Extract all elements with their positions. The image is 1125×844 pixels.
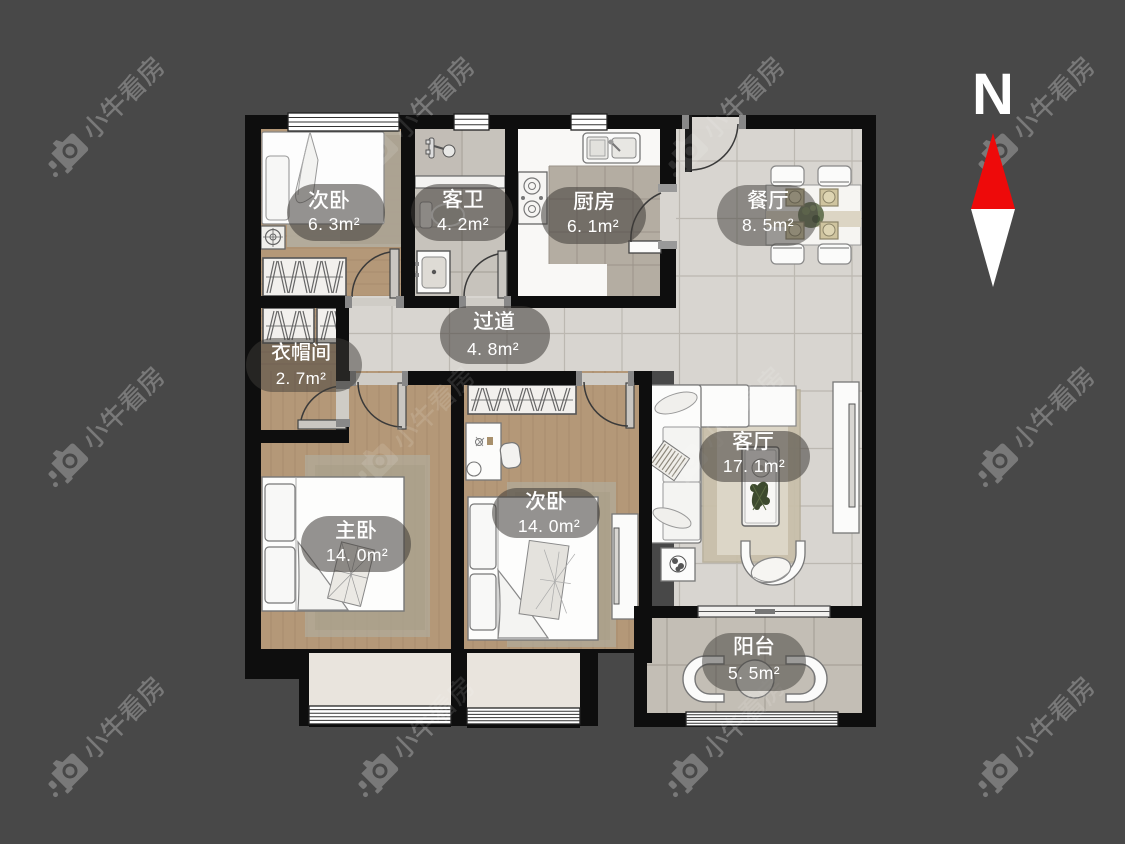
svg-text:17. 1m²: 17. 1m² <box>723 456 785 476</box>
svg-text:6. 1m²: 6. 1m² <box>567 216 619 236</box>
svg-text:8. 5m²: 8. 5m² <box>742 215 794 235</box>
svg-text:4. 8m²: 4. 8m² <box>467 339 519 359</box>
svg-text:6. 3m²: 6. 3m² <box>308 214 360 234</box>
svg-text:N: N <box>972 62 1014 127</box>
svg-text:2. 7m²: 2. 7m² <box>276 369 327 388</box>
svg-text:14. 0m²: 14. 0m² <box>326 545 388 565</box>
svg-text:4. 2m²: 4. 2m² <box>437 214 489 234</box>
svg-text:5. 5m²: 5. 5m² <box>728 663 780 683</box>
svg-text:14. 0m²: 14. 0m² <box>518 516 580 536</box>
